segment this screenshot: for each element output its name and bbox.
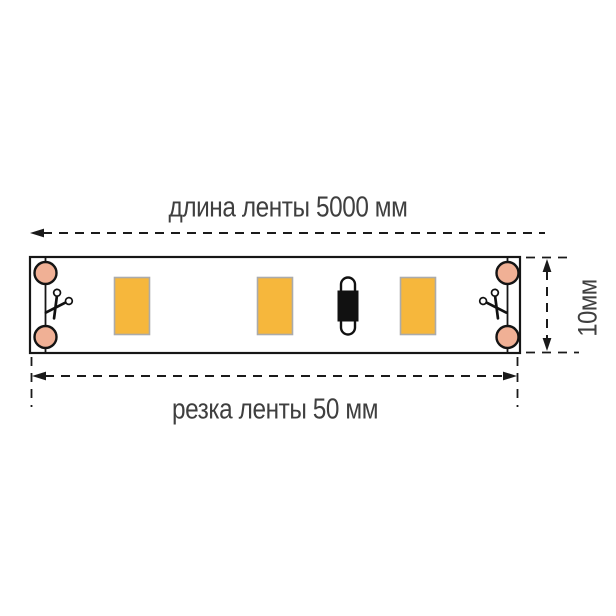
resistor-component bbox=[338, 278, 359, 335]
arrow-right-icon bbox=[503, 372, 517, 381]
arrow-down-icon bbox=[543, 338, 552, 351]
solder-pad bbox=[497, 262, 519, 284]
led-strip-diagram: длина ленты 5000 мм резка ленты 50 мм 10… bbox=[0, 0, 616, 616]
led-chip bbox=[401, 278, 436, 335]
arrow-left-icon bbox=[32, 372, 46, 381]
arrow-left-icon bbox=[30, 229, 44, 238]
led-chip bbox=[115, 278, 150, 335]
tape-width-dimension-line bbox=[526, 258, 579, 353]
cut-length-dimension-line bbox=[32, 372, 517, 381]
tape-length-dimension-line bbox=[30, 229, 545, 238]
diagram-artwork bbox=[0, 0, 616, 616]
solder-pad bbox=[35, 262, 57, 284]
solder-pad bbox=[497, 326, 519, 348]
solder-pad bbox=[35, 326, 57, 348]
arrow-up-icon bbox=[543, 259, 552, 272]
led-chip bbox=[258, 278, 293, 335]
